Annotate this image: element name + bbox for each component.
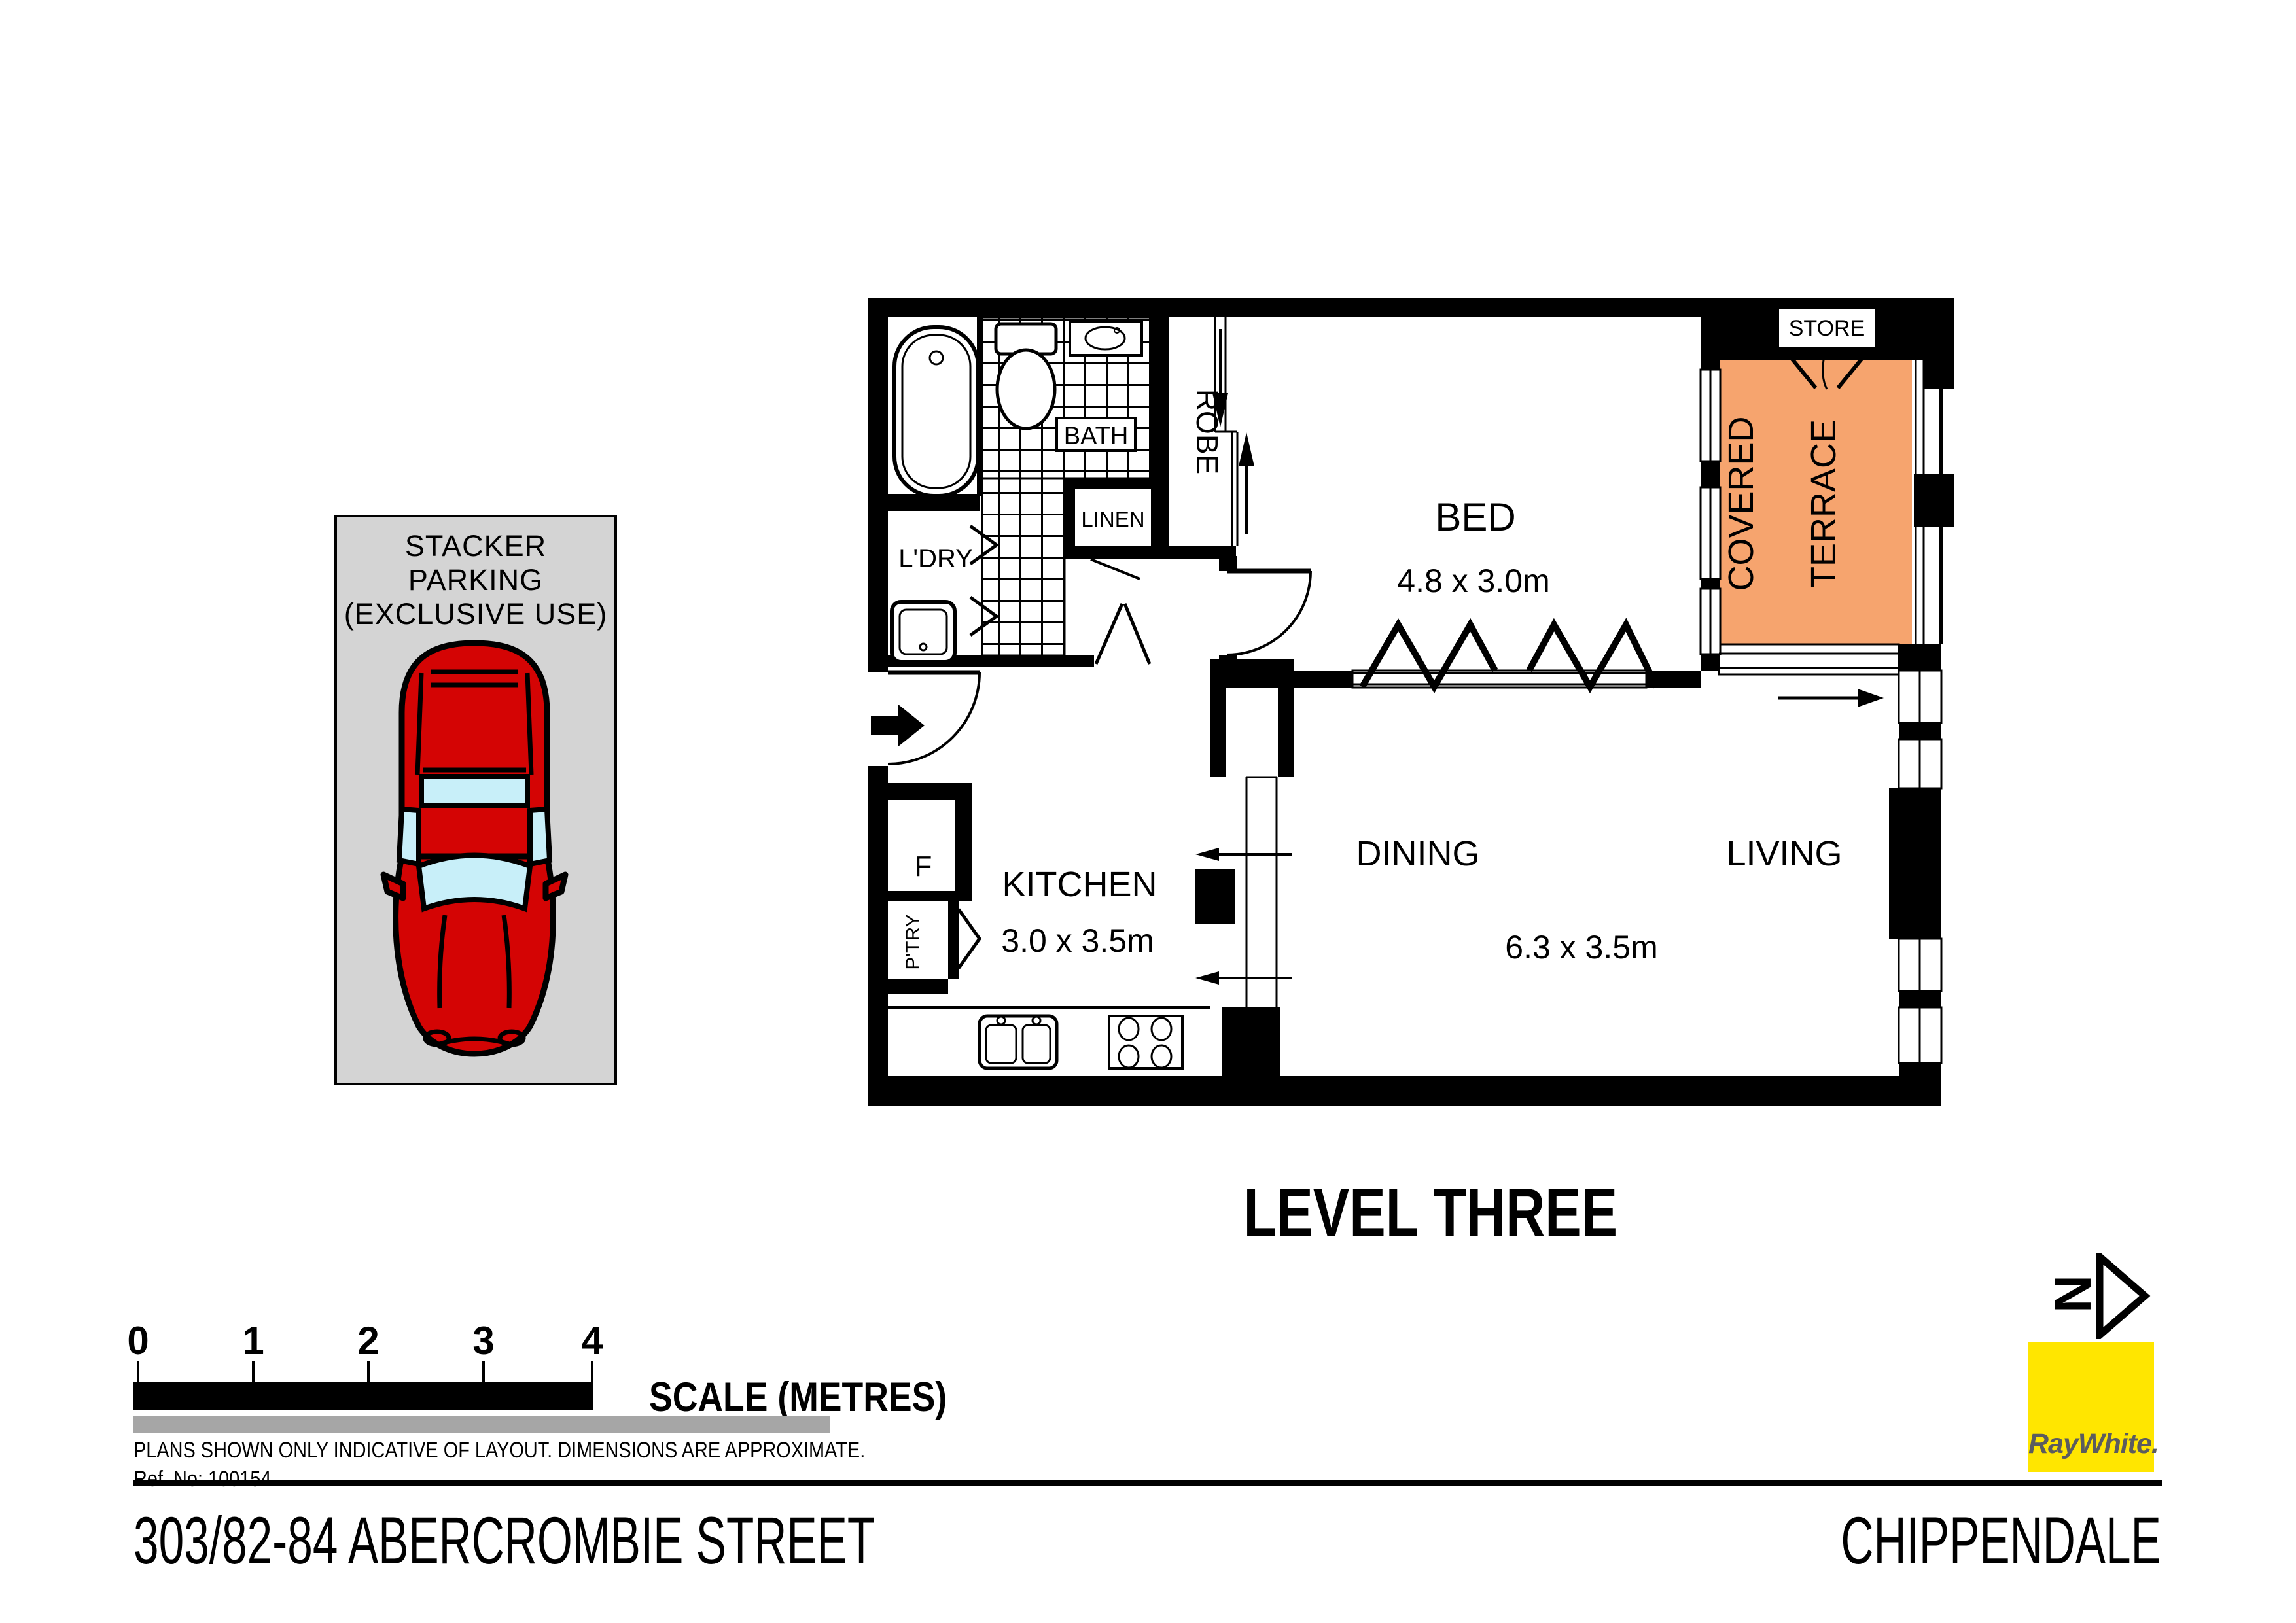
entry-arrow-icon: [871, 705, 925, 746]
servery-tracks: [1246, 777, 1277, 1007]
living-dining-dims: 6.3 x 3.5m: [1505, 929, 1657, 966]
linen-label: LINEN: [1081, 507, 1144, 531]
scale-tickmark: [482, 1361, 485, 1382]
floorplan-page: STACKER PARKING (EXCLUSIVE USE): [0, 0, 2296, 1623]
scale-tick-0: 0: [127, 1318, 149, 1363]
basin-icon: [1070, 321, 1142, 355]
bath-tiled-floor-lower: [982, 478, 1065, 655]
stacker-parking-panel: STACKER PARKING (EXCLUSIVE USE): [334, 515, 617, 1085]
scale-tickmark: [137, 1361, 139, 1382]
toilet-icon: [996, 324, 1056, 428]
parking-label-line2: PARKING: [337, 563, 614, 597]
dining-label: DINING: [1356, 834, 1480, 873]
scale-tickmark: [367, 1361, 370, 1382]
scale-tickmark: [591, 1361, 593, 1382]
cooktop-icon: [1109, 1016, 1182, 1068]
laundry-tub-icon: [892, 602, 955, 662]
bathtub-icon: [894, 327, 978, 496]
street-address: 303/82-84 ABERCROMBIE STREET: [133, 1503, 1224, 1579]
floor-plan: BATH ROBE LINEN L'DRY STORE COVERED TERR…: [868, 298, 1954, 1106]
kitchen-sink-icon: [980, 1016, 1057, 1068]
scale-bar: [133, 1382, 593, 1410]
level-title: LEVEL THREE: [1099, 1174, 1761, 1252]
fridge-label: F: [915, 850, 932, 882]
footer-divider: [133, 1480, 2162, 1486]
bath-label: BATH: [1064, 423, 1129, 450]
kitchen-dims: 3.0 x 3.5m: [1001, 922, 1154, 959]
parking-label-line3: (EXCLUSIVE USE): [337, 597, 614, 631]
gray-bar: [133, 1416, 830, 1433]
raywhite-logo-text: RayWhite.: [2028, 1428, 2154, 1460]
robe-label: ROBE: [1190, 389, 1224, 474]
pantry-label: P'TRY: [902, 914, 924, 969]
terrace-slider-arrow-icon: [1778, 689, 1884, 707]
scale-label: SCALE (METRES): [649, 1374, 1000, 1421]
laundry-label: L'DRY: [898, 544, 973, 573]
kitchen-label: KITCHEN: [1002, 865, 1157, 904]
bed-door-icon: [1227, 571, 1311, 655]
raywhite-logo: RayWhite.: [2028, 1342, 2154, 1472]
store-label: STORE: [1789, 316, 1865, 341]
linen-door-icon: [1091, 559, 1140, 579]
scale-tickmark: [252, 1361, 255, 1382]
pantry-door-icon: [959, 909, 980, 968]
disclaimer-text: PLANS SHOWN ONLY INDICATIVE OF LAYOUT. D…: [133, 1438, 995, 1463]
car-icon: [380, 634, 569, 1071]
bed-label: BED: [1435, 495, 1515, 539]
living-label: LIVING: [1726, 834, 1842, 873]
parking-label-line1: STACKER: [337, 529, 614, 563]
suburb-name: CHIPPENDALE: [1690, 1503, 2161, 1579]
bath-doors-icon: [1096, 604, 1150, 664]
terrace-label-line1: COVERED: [1722, 416, 1761, 591]
terrace-label-line2: TERRACE: [1804, 419, 1843, 588]
scale-tick-1: 1: [242, 1318, 264, 1363]
bed-dims: 4.8 x 3.0m: [1397, 563, 1549, 599]
scale-tick-2: 2: [357, 1318, 379, 1363]
scale-tick-4: 4: [581, 1318, 603, 1363]
scale-tick-3: 3: [472, 1318, 494, 1363]
north-arrow-icon: [2094, 1253, 2153, 1339]
